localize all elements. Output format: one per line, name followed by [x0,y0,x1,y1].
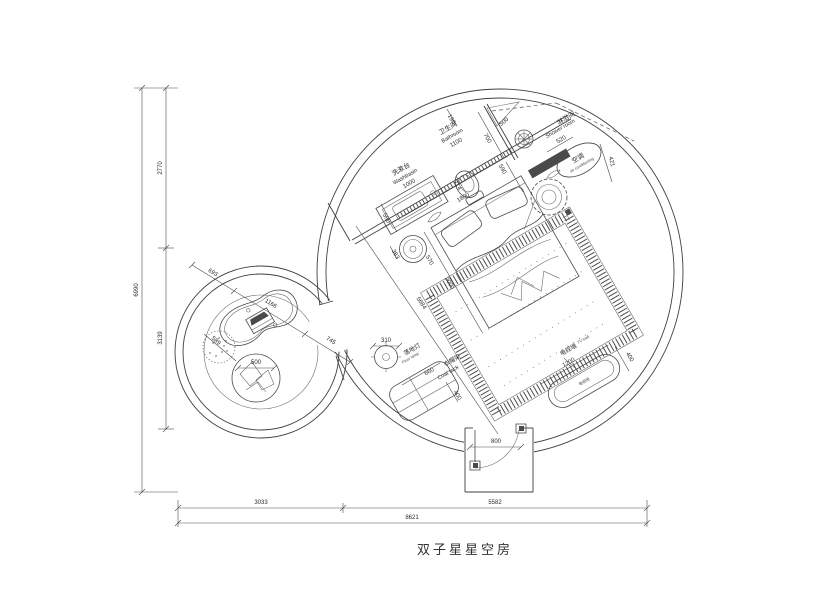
coat-rack-label-zh: 衣帽架 [442,352,462,368]
entry-vestibule: 800 [464,424,534,494]
dim-3033: 3033 [254,500,268,506]
dim-383: 383 [390,249,401,261]
bedside-stool [400,236,427,263]
main-room-walls [317,89,683,455]
dim-800: 800 [491,439,502,445]
blanket-crumple [501,264,560,309]
dim-421: 421 [607,156,616,168]
dim-6990: 6990 [134,283,140,297]
dim-3139: 3139 [158,331,164,345]
round-stool [531,179,567,215]
dim-714: 714 [452,180,463,192]
floor-lamp [371,342,401,372]
kidney-table [213,280,304,355]
rug [421,207,644,421]
tv-cabinet-label: 电视柜 [577,375,590,386]
dim-5684: 5684 [415,296,428,311]
dim-500-left: 500 [251,360,262,366]
dim-310: 310 [381,338,392,344]
left-dim-lines: 6990 2770 3139 [134,85,178,495]
plan-title: 双子星星空房 [417,542,513,557]
dim-5582: 5582 [488,500,502,506]
tv-wall-label-en: TV wall [576,334,590,345]
bench [528,149,571,179]
dim-400-tv: 400 [624,351,635,363]
floor-plan-page: 800 空调 air conditioning [0,0,837,592]
passage-opening [309,300,361,352]
floor-plan-canvas: 800 空调 air conditioning [0,0,837,592]
small-room-walls [175,266,347,438]
dim-1800: 1800 [456,192,471,204]
dim-693: 693 [207,268,219,279]
bathroom-walls [328,102,634,244]
dim-2770: 2770 [158,161,164,175]
room-labels: 洗漱台 Washbasin 1000 卫生间 Bathroom 1100 淋浴间… [390,109,576,382]
shower-drain-icon [515,130,533,148]
blanket-edge [453,214,546,272]
plant-sketch [428,212,441,222]
dim-589: 589 [210,336,222,347]
tv-wall-label-zh: 电视墙 [558,342,578,358]
dim-500-top: 500 [499,116,511,127]
dim-590: 590 [497,164,508,176]
dim-570: 570 [424,255,435,267]
dim-8621: 8621 [405,515,419,521]
dim-550: 550 [381,213,392,225]
bottom-dim-lines: 3033 5582 8621 [175,500,650,527]
